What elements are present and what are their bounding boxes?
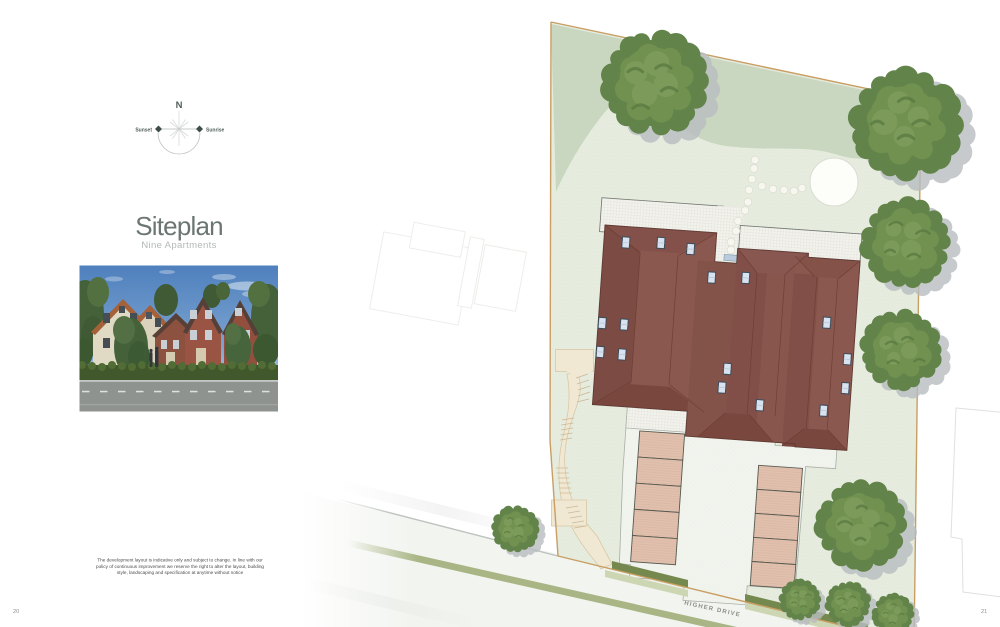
svg-text:Siteplan: Siteplan (135, 211, 223, 241)
svg-text:Sunset: Sunset (135, 128, 152, 134)
svg-text:policy of continuous improveme: policy of continuous improvement we rese… (96, 564, 264, 569)
svg-text:Sunrise: Sunrise (206, 128, 225, 134)
svg-text:20: 20 (13, 609, 19, 615)
svg-text:N: N (176, 100, 183, 111)
svg-text:The development layout is indi: The development layout is indicative onl… (97, 558, 263, 563)
svg-text:21: 21 (981, 609, 987, 615)
svg-text:Nine Apartments: Nine Apartments (141, 240, 216, 251)
svg-text:style, landscaping and specifi: style, landscaping and specification at … (117, 570, 244, 575)
